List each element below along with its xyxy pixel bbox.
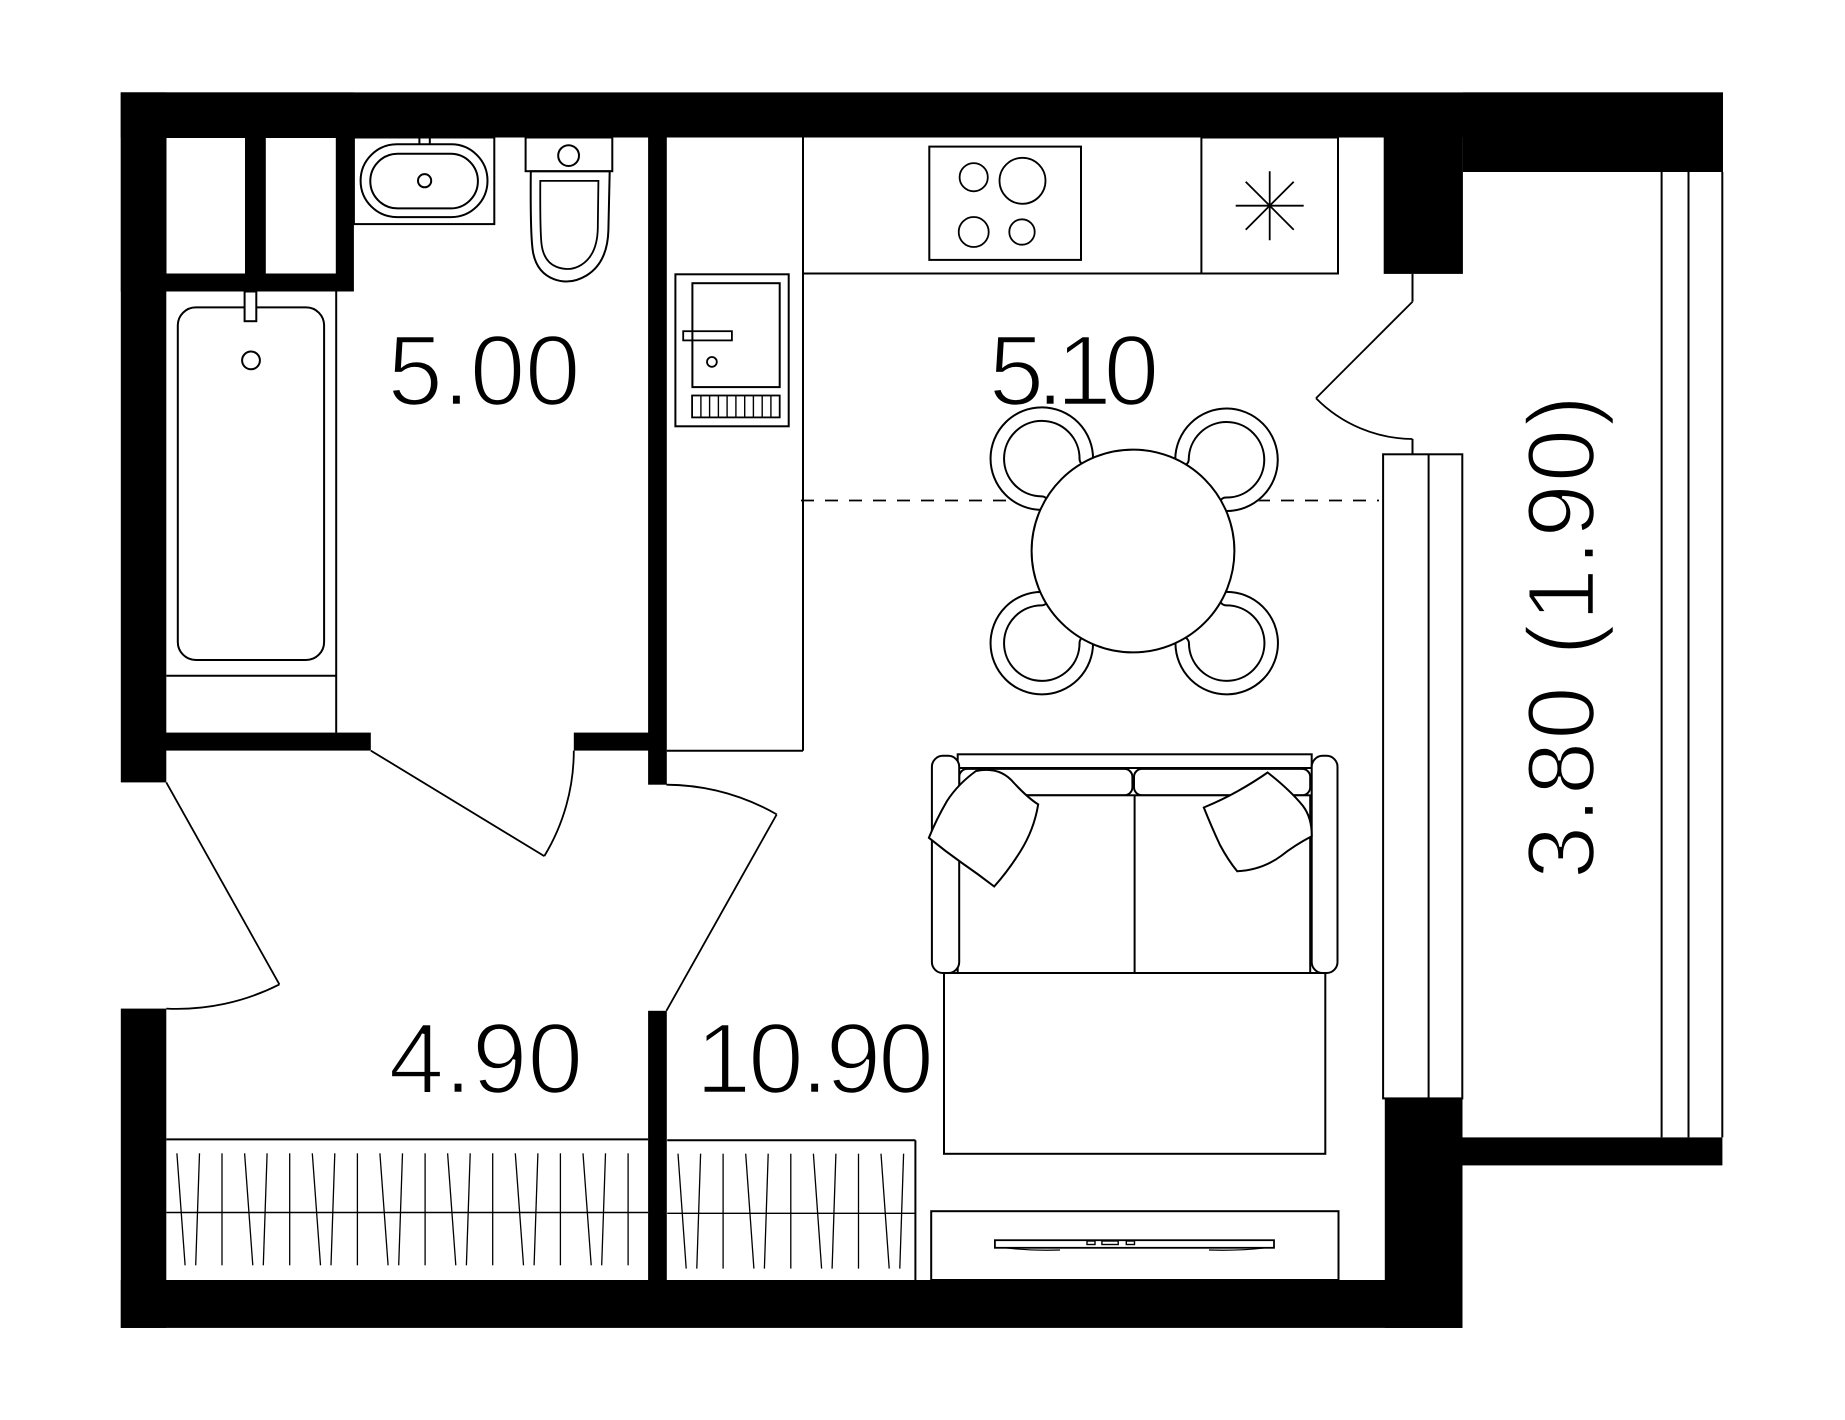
svg-text:5.10: 5.10	[989, 315, 1156, 427]
svg-text:3.80 (1.90): 3.80 (1.90)	[1508, 393, 1615, 879]
svg-text:4.90: 4.90	[388, 1003, 583, 1115]
svg-text:5.00: 5.00	[387, 315, 580, 427]
svg-text:10.90: 10.90	[696, 1003, 931, 1115]
